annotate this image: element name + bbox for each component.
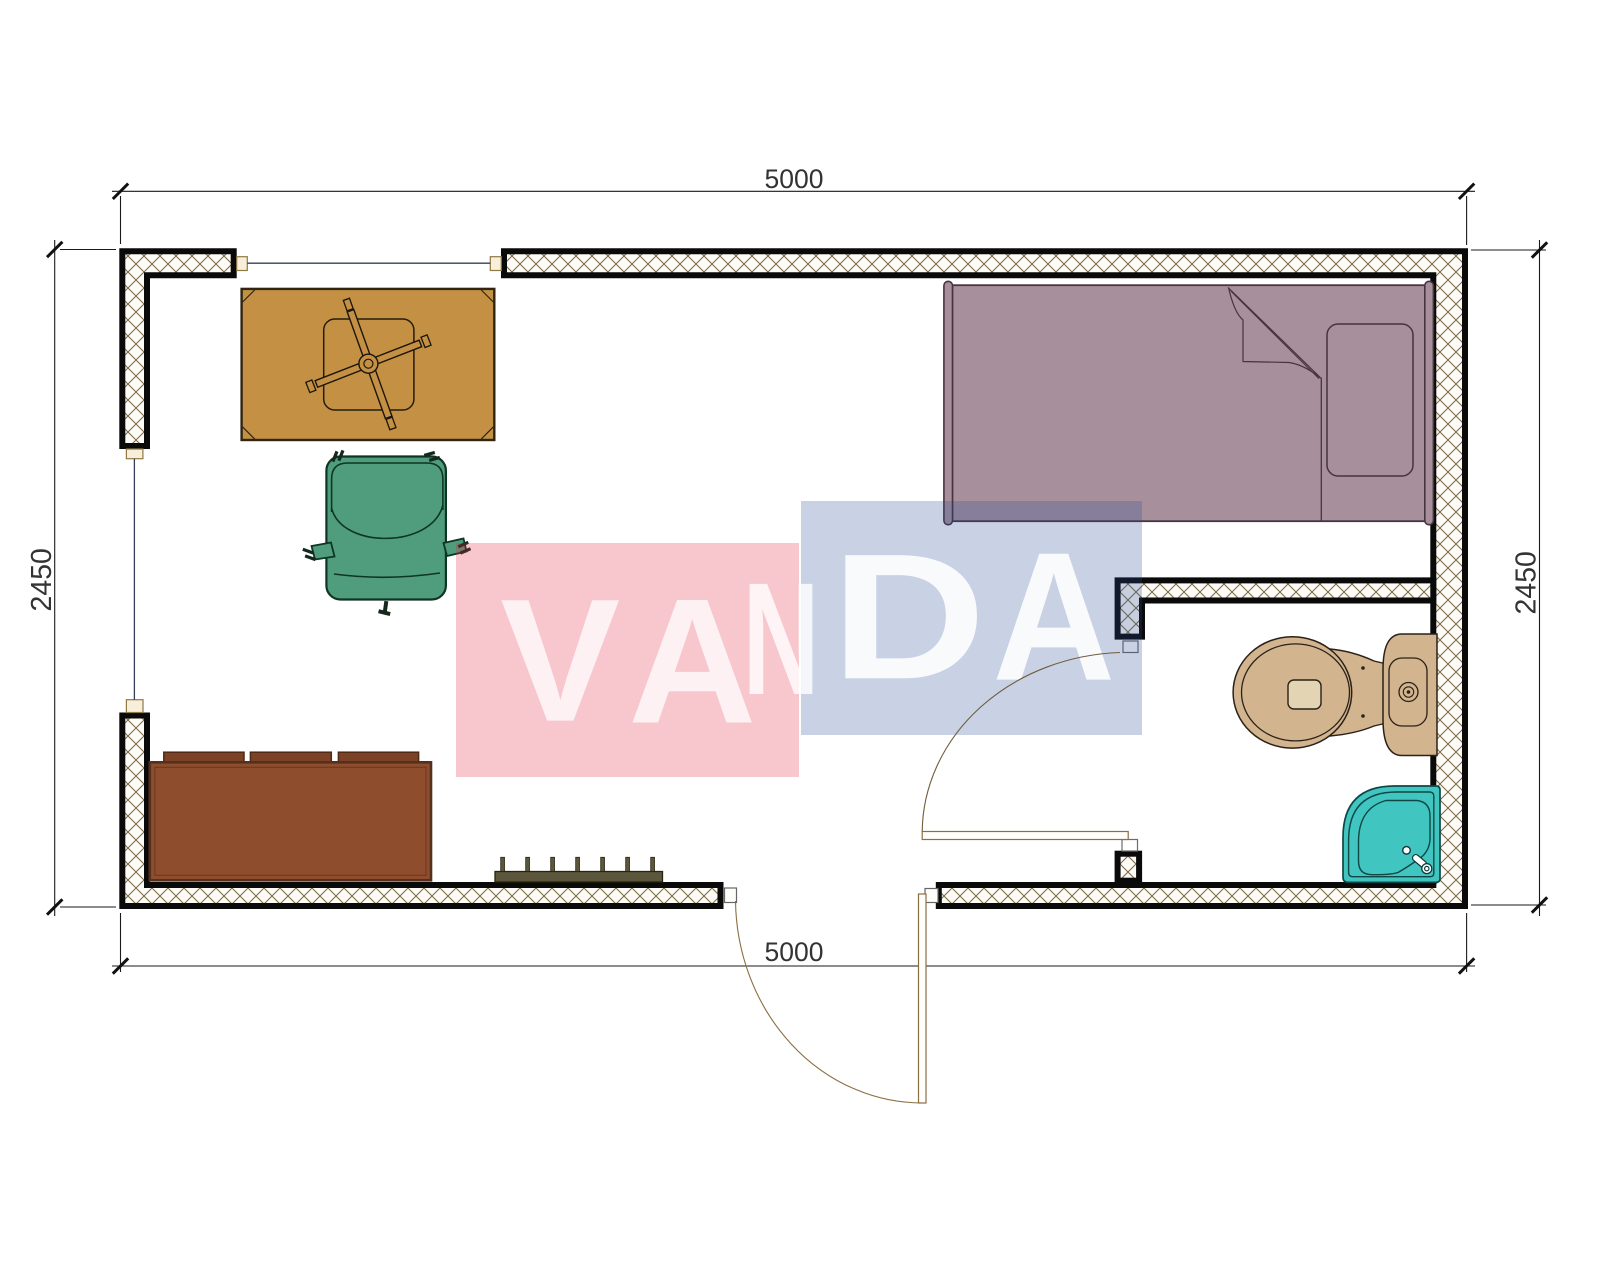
svg-text:N: N	[743, 549, 820, 728]
svg-text:A: A	[628, 562, 757, 761]
svg-text:D: D	[831, 516, 986, 716]
svg-text:2450: 2450	[26, 548, 58, 611]
svg-text:V: V	[500, 564, 620, 759]
svg-text:A: A	[992, 514, 1115, 719]
svg-text:5000: 5000	[765, 164, 824, 194]
svg-text:2450: 2450	[1511, 551, 1543, 614]
svg-text:5000: 5000	[765, 937, 824, 967]
